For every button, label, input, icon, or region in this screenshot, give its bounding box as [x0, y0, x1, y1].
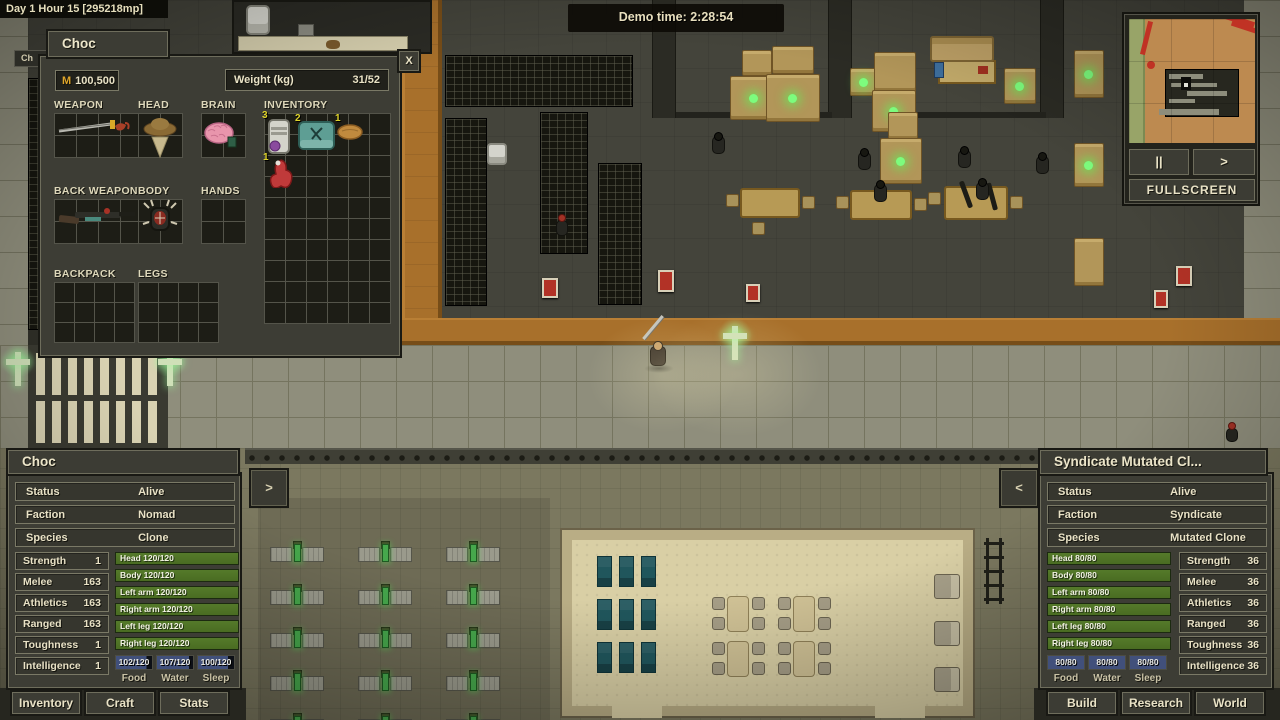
inventory-window: M 100,500 Weight (kg) 31/52 WEAPON HEAD … [40, 56, 400, 356]
item-slot[interactable] [370, 198, 390, 218]
crate-sprite[interactable] [742, 50, 772, 76]
item-slot[interactable] [286, 261, 306, 281]
cafe-chair[interactable] [818, 617, 831, 630]
world-button[interactable]: World [1196, 692, 1264, 714]
item-slot[interactable] [328, 198, 348, 218]
street-lamp[interactable] [167, 352, 173, 386]
stat-row: Athletics36 [1179, 594, 1267, 612]
teal-bench[interactable] [619, 556, 634, 587]
item-slot[interactable] [370, 135, 390, 155]
rack-unit[interactable] [302, 590, 324, 605]
right-character-tab[interactable]: Syndicate Mutated Cl... [1040, 450, 1266, 474]
armchair[interactable] [934, 621, 960, 646]
health-bar: Right leg 120/120 [115, 637, 239, 650]
cafe-chair[interactable] [778, 642, 791, 655]
ladder-rung [984, 584, 1004, 587]
rack-unit[interactable] [446, 633, 468, 648]
status-row: StatusAlive [15, 482, 235, 501]
money-box: M 100,500 [55, 70, 119, 91]
item-slot[interactable] [199, 283, 218, 302]
rack-light [470, 544, 477, 562]
npc-head [1228, 422, 1236, 430]
stat-value: 36 [1247, 660, 1259, 672]
item-slot[interactable] [286, 282, 306, 302]
item-slot[interactable] [265, 219, 285, 239]
minimap-panel: || > FULLSCREEN [1124, 14, 1258, 204]
stat-label: Melee [1187, 576, 1216, 588]
rack-light [294, 716, 301, 720]
item-slot[interactable] [115, 323, 134, 342]
teal-bench[interactable] [641, 642, 656, 673]
item-slot[interactable] [349, 240, 369, 260]
cafe-chair[interactable] [778, 597, 791, 610]
item-slot[interactable] [179, 303, 198, 322]
barbed-fence [245, 448, 1040, 464]
item-slot[interactable] [265, 261, 285, 281]
chair-sprite[interactable] [726, 194, 739, 207]
health-bar: Left arm 120/120 [115, 586, 239, 599]
stat-row: Intelligence36 [1179, 657, 1267, 675]
item-slot[interactable] [224, 200, 245, 221]
item-slot[interactable] [328, 261, 348, 281]
rack-unit[interactable] [390, 547, 412, 562]
rack-unit[interactable] [390, 590, 412, 605]
item-slot[interactable] [307, 282, 327, 302]
rack-unit[interactable] [302, 676, 324, 691]
item-slot[interactable] [349, 219, 369, 239]
poster[interactable] [542, 278, 558, 298]
cafe-chair[interactable] [712, 642, 725, 655]
rack-unit[interactable] [478, 676, 500, 691]
backpack-label: BACKPACK [54, 268, 116, 280]
cafe-chair[interactable] [712, 597, 725, 610]
stat-label: Ranged [23, 618, 62, 630]
item-slot[interactable] [349, 303, 369, 323]
rack-unit[interactable] [358, 676, 380, 691]
item-slot[interactable] [328, 240, 348, 260]
couch[interactable] [930, 36, 994, 62]
item-slot[interactable] [370, 219, 390, 239]
item-slot[interactable] [349, 177, 369, 197]
food-label: Food [115, 673, 153, 684]
stat-value: 163 [83, 618, 101, 630]
species-value: Clone [138, 532, 169, 544]
item-slot[interactable] [199, 303, 218, 322]
box-prop [298, 24, 314, 36]
item-slot[interactable] [370, 114, 390, 134]
stat-value: 36 [1247, 576, 1259, 588]
item-slot[interactable] [286, 219, 306, 239]
stat-row: Ranged36 [1179, 615, 1267, 633]
cafe-chair[interactable] [818, 642, 831, 655]
rack-unit[interactable] [446, 676, 468, 691]
brain-item[interactable] [201, 119, 245, 151]
stat-label: Strength [1187, 555, 1230, 567]
item-slot[interactable] [328, 282, 348, 302]
crate-light [1084, 161, 1093, 170]
item-slot[interactable] [286, 303, 306, 323]
build-button[interactable]: Build [1048, 692, 1116, 714]
expand-left-button[interactable]: > [251, 470, 287, 506]
cafe-table[interactable] [793, 596, 815, 632]
faction-label: Faction [1058, 509, 1097, 521]
fullscreen-button[interactable]: FULLSCREEN [1129, 179, 1255, 201]
stats-button[interactable]: Stats [160, 692, 228, 714]
rack-unit[interactable] [446, 590, 468, 605]
teal-bench[interactable] [597, 556, 612, 587]
canister-item[interactable] [266, 114, 292, 156]
item-slot[interactable] [328, 303, 348, 323]
rack-unit[interactable] [302, 547, 324, 562]
health-bar: Head 120/120 [115, 552, 239, 565]
rack-unit[interactable] [358, 547, 380, 562]
rack-light [470, 630, 477, 648]
poster[interactable] [1154, 290, 1168, 308]
npc-head [960, 146, 969, 155]
stat-label: Athletics [23, 597, 67, 609]
medkit-item[interactable] [297, 119, 337, 151]
rack-unit[interactable] [478, 633, 500, 648]
item-slot[interactable] [95, 303, 114, 322]
bench-part [978, 66, 988, 74]
food-bar: 102/120 [115, 655, 153, 670]
pause-button[interactable]: || [1129, 149, 1189, 175]
rack-unit[interactable] [358, 590, 380, 605]
status-label: Status [26, 486, 60, 498]
rack-unit[interactable] [478, 547, 500, 562]
item-slot[interactable] [139, 283, 158, 302]
stat-value: 1 [95, 555, 101, 567]
item-slot[interactable] [95, 283, 114, 302]
crate-light [1084, 70, 1093, 79]
teal-bench[interactable] [597, 599, 612, 630]
item-slot[interactable] [159, 283, 178, 302]
stat-label: Toughness [23, 639, 78, 651]
crate-sprite[interactable] [874, 52, 916, 92]
ladder-rung [984, 598, 1004, 601]
armchair[interactable] [934, 574, 960, 599]
npc-sprite[interactable] [1226, 428, 1238, 442]
crosswalk-stripes [36, 401, 160, 443]
item-slot[interactable] [307, 177, 327, 197]
rack-light [382, 544, 389, 562]
hands-slots [201, 199, 246, 244]
cafe-chair[interactable] [752, 662, 765, 675]
npc-head [860, 148, 869, 157]
health-bar: Left leg 120/120 [115, 620, 239, 633]
storage-shelf [445, 118, 487, 306]
stat-label: Strength [23, 555, 66, 567]
item-slot[interactable] [286, 198, 306, 218]
cafe-chair[interactable] [778, 617, 791, 630]
status-value: Alive [138, 486, 164, 498]
item-slot[interactable] [75, 303, 94, 322]
chair-sprite[interactable] [836, 196, 849, 209]
item-slot[interactable] [370, 240, 390, 260]
collapse-right-button[interactable]: < [1001, 470, 1037, 506]
stat-row: Strength36 [1179, 552, 1267, 570]
water-bar: 107/120 [156, 655, 194, 670]
health-bar: Right leg 80/80 [1047, 637, 1171, 650]
cafe-chair[interactable] [818, 597, 831, 610]
light-pool [652, 312, 822, 437]
stat-row: Toughness1 [15, 636, 109, 654]
rack-light [294, 587, 301, 605]
legs-slots [138, 282, 219, 343]
faction-value: Nomad [138, 509, 175, 521]
faction-label: Faction [26, 509, 65, 521]
water-label: Water [1088, 673, 1126, 684]
left-character-tab[interactable]: Choc [8, 450, 238, 474]
item-slot[interactable] [95, 323, 114, 342]
item-slot[interactable] [75, 283, 94, 302]
item-slot[interactable] [202, 222, 223, 243]
health-bar: Head 80/80 [1047, 552, 1171, 565]
item-slot[interactable] [370, 303, 390, 323]
stat-value: 163 [83, 576, 101, 588]
close-icon[interactable]: X [399, 51, 419, 71]
item-slot[interactable] [307, 261, 327, 281]
item-slot[interactable] [307, 303, 327, 323]
sleep-label: Sleep [1129, 673, 1167, 684]
item-slot[interactable] [265, 240, 285, 260]
ladder-rung [984, 556, 1004, 559]
species-value: Mutated Clone [1170, 532, 1246, 544]
rack-light [382, 716, 389, 720]
rack-light [294, 630, 301, 648]
food-prop [326, 40, 340, 49]
rack-unit[interactable] [270, 590, 292, 605]
speed-button[interactable]: > [1193, 149, 1255, 175]
shotgun-item[interactable] [55, 201, 141, 231]
door-gap [875, 702, 925, 718]
water-bar: 80/80 [1088, 655, 1126, 670]
stat-row: Strength1 [15, 552, 109, 570]
item-slot[interactable] [307, 156, 327, 176]
item-slot[interactable] [328, 156, 348, 176]
stat-row: Athletics163 [15, 594, 109, 612]
item-slot[interactable] [265, 303, 285, 323]
item-slot[interactable] [115, 283, 134, 302]
katana-item[interactable] [53, 113, 141, 141]
table-sprite[interactable] [740, 188, 800, 218]
game-screen: Day 1 Hour 15 [295218mp] Ch Choc Demo ti… [0, 0, 1280, 720]
item-slot[interactable] [265, 282, 285, 302]
item-slot[interactable] [349, 156, 369, 176]
canister-prop [246, 5, 270, 35]
item-slot[interactable] [202, 200, 223, 221]
item-slot[interactable] [370, 282, 390, 302]
bench-tool [934, 62, 944, 78]
teal-bench[interactable] [641, 599, 656, 630]
stat-value: 163 [83, 597, 101, 609]
stat-label: Athletics [1187, 597, 1231, 609]
item-slot[interactable] [159, 323, 178, 342]
npc-head [1038, 152, 1047, 161]
street-lamp[interactable] [6, 359, 30, 365]
armor-item[interactable] [140, 199, 180, 239]
organ-item[interactable] [269, 156, 293, 188]
item-slot[interactable] [307, 240, 327, 260]
food-bar: 80/80 [1047, 655, 1085, 670]
health-bar: Right arm 120/120 [115, 603, 239, 616]
item-slot[interactable] [328, 219, 348, 239]
chair-sprite[interactable] [802, 196, 815, 209]
food-label: Food [1047, 673, 1085, 684]
head-label: HEAD [138, 99, 169, 111]
rack-unit[interactable] [446, 547, 468, 562]
cafe-chair[interactable] [712, 617, 725, 630]
crate-sprite[interactable] [1074, 238, 1104, 286]
minimap-grid [1129, 19, 1255, 143]
item-slot[interactable] [139, 303, 158, 322]
item-slot[interactable] [55, 303, 74, 322]
item-slot[interactable] [370, 156, 390, 176]
item-slot[interactable] [179, 323, 198, 342]
cafe-chair[interactable] [778, 662, 791, 675]
teal-bench[interactable] [597, 642, 612, 673]
sleep-bar: 100/120 [197, 655, 235, 670]
item-slot[interactable] [307, 219, 327, 239]
item-slot[interactable] [265, 198, 285, 218]
rack-light [382, 630, 389, 648]
crate-light [859, 78, 868, 87]
item-slot[interactable] [115, 303, 134, 322]
species-row: SpeciesMutated Clone [1047, 528, 1267, 547]
cafe-chair[interactable] [712, 662, 725, 675]
counter-shelf [238, 36, 408, 51]
demo-time: Demo time: 2:28:54 [568, 4, 784, 32]
stat-value: 36 [1247, 597, 1259, 609]
chair-sprite[interactable] [914, 198, 927, 211]
rack-unit[interactable] [390, 676, 412, 691]
item-slot[interactable] [179, 283, 198, 302]
backpack-slots [54, 282, 135, 343]
item-slot[interactable] [286, 240, 306, 260]
stat-row: Ranged163 [15, 615, 109, 633]
item-slot[interactable] [349, 261, 369, 281]
pillar [828, 0, 852, 118]
rack-unit[interactable] [270, 547, 292, 562]
cafe-chair[interactable] [752, 597, 765, 610]
chair-sprite[interactable] [928, 192, 941, 205]
poster[interactable] [746, 284, 760, 302]
rack-unit[interactable] [270, 633, 292, 648]
storage-shelf [445, 55, 633, 107]
ladder-rung [984, 542, 1004, 545]
item-slot[interactable] [370, 261, 390, 281]
poster[interactable] [1176, 266, 1192, 286]
street-lamp[interactable] [15, 352, 21, 386]
item-slot[interactable] [349, 282, 369, 302]
crate-sprite[interactable] [888, 112, 918, 140]
weapon-label: WEAPON [54, 99, 103, 111]
npc-sprite[interactable] [556, 220, 568, 236]
vending-machine[interactable] [487, 143, 507, 165]
medkit-count: 2 [295, 113, 301, 124]
storage-shelf [28, 78, 40, 330]
craft-button[interactable]: Craft [86, 692, 154, 714]
item-slot[interactable] [55, 283, 74, 302]
health-bar: Right arm 80/80 [1047, 603, 1171, 616]
minimap[interactable] [1129, 19, 1255, 143]
research-button[interactable]: Research [1122, 692, 1190, 714]
hat-item[interactable] [139, 115, 181, 159]
sleep-label: Sleep [197, 673, 235, 684]
item-slot[interactable] [199, 323, 218, 342]
hands-label: HANDS [201, 185, 240, 197]
street-lamp[interactable] [158, 359, 182, 365]
stat-value: 36 [1247, 618, 1259, 630]
item-slot[interactable] [55, 323, 74, 342]
species-label: Species [1058, 532, 1100, 544]
item-slot[interactable] [139, 323, 158, 342]
faction-row: FactionNomad [15, 505, 235, 524]
item-slot[interactable] [370, 177, 390, 197]
stat-label: Toughness [1187, 639, 1242, 651]
rack-unit[interactable] [358, 633, 380, 648]
stat-row: Toughness36 [1179, 636, 1267, 654]
crate-sprite[interactable] [772, 46, 814, 74]
rack-unit[interactable] [390, 633, 412, 648]
item-slot[interactable] [75, 323, 94, 342]
rack-light [382, 673, 389, 691]
ladder-rung [984, 570, 1004, 573]
legs-label: LEGS [138, 268, 168, 280]
left-character-panel: StatusAlive FactionNomad SpeciesClone St… [8, 474, 240, 688]
rack-unit[interactable] [270, 676, 292, 691]
health-bar: Left arm 80/80 [1047, 586, 1171, 599]
rack-light [470, 716, 477, 720]
inventory-button[interactable]: Inventory [12, 692, 80, 714]
water-label: Water [156, 673, 194, 684]
stat-label: Ranged [1187, 618, 1226, 630]
armchair[interactable] [934, 667, 960, 692]
cafe-chair[interactable] [752, 642, 765, 655]
bread-item[interactable] [337, 124, 363, 140]
money-currency-icon: M [62, 75, 71, 87]
stat-value: 36 [1247, 555, 1259, 567]
weight-box: Weight (kg) 31/52 [225, 69, 389, 91]
item-slot[interactable] [307, 198, 327, 218]
rack-unit[interactable] [478, 590, 500, 605]
teal-bench[interactable] [619, 599, 634, 630]
chair-sprite[interactable] [752, 222, 765, 235]
cafe-chair[interactable] [752, 617, 765, 630]
item-slot[interactable] [328, 177, 348, 197]
item-slot[interactable] [349, 198, 369, 218]
teal-bench[interactable] [641, 556, 656, 587]
item-slot[interactable] [159, 303, 178, 322]
rack-light [470, 673, 477, 691]
right-character-panel: StatusAlive FactionSyndicate SpeciesMuta… [1040, 474, 1272, 688]
inventory-window-tab[interactable]: Choc [48, 31, 168, 57]
cafe-table[interactable] [727, 641, 749, 677]
canister-count: 3 [262, 110, 268, 121]
poster[interactable] [658, 270, 674, 292]
cafe-table[interactable] [793, 641, 815, 677]
species-label: Species [26, 532, 68, 544]
cafe-chair[interactable] [818, 662, 831, 675]
cafe-table[interactable] [727, 596, 749, 632]
teal-bench[interactable] [619, 642, 634, 673]
health-bar: Left leg 80/80 [1047, 620, 1171, 633]
sleep-bar: 80/80 [1129, 655, 1167, 670]
rack-unit[interactable] [302, 633, 324, 648]
chair-sprite[interactable] [1010, 196, 1023, 209]
item-slot[interactable] [224, 222, 245, 243]
orange-wall [402, 318, 1280, 345]
